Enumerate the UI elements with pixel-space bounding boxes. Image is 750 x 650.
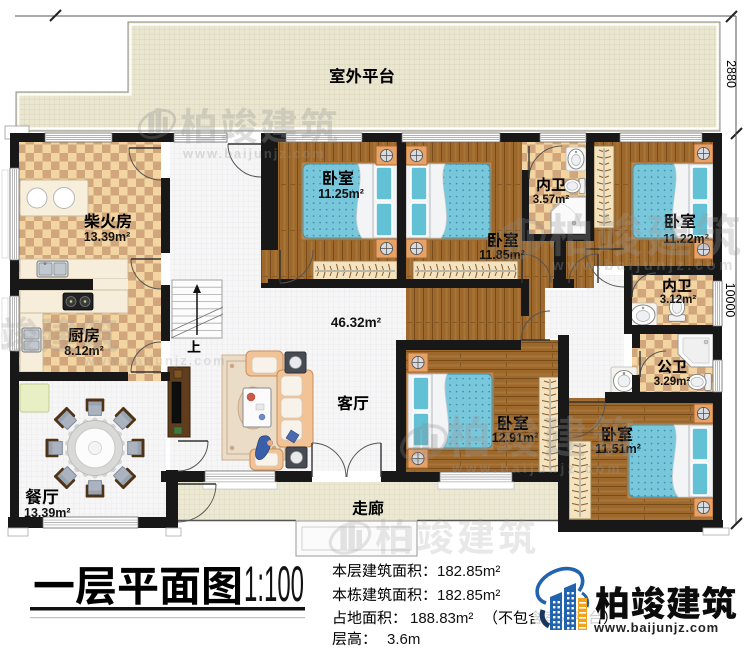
- svg-text:46.32m²: 46.32m²: [331, 315, 382, 330]
- svg-text:3.6m: 3.6m: [387, 631, 420, 648]
- svg-text:188.83m²: 188.83m²: [410, 610, 473, 627]
- svg-text:www.baijunjz.com: www.baijunjz.com: [182, 146, 326, 161]
- svg-text:3.12m²: 3.12m²: [660, 294, 697, 306]
- svg-text:www.baijunjz.com: www.baijunjz.com: [451, 461, 623, 476]
- svg-text:www.baijunjz.com: www.baijunjz.com: [593, 620, 719, 635]
- svg-text:13.39m²: 13.39m²: [84, 230, 131, 244]
- svg-text:11.25m²: 11.25m²: [318, 187, 364, 201]
- svg-text:3.29m²: 3.29m²: [654, 376, 691, 388]
- svg-text:www.baijunjz.com: www.baijunjz.com: [551, 257, 736, 274]
- svg-text:2880: 2880: [724, 60, 738, 88]
- svg-text:www.baijunjz.com: www.baijunjz.com: [83, 353, 227, 368]
- svg-text:13.39m²: 13.39m²: [24, 506, 71, 520]
- svg-text:3.57m²: 3.57m²: [533, 194, 570, 206]
- svg-text:1:100: 1:100: [244, 556, 304, 612]
- svg-text:182.85m²: 182.85m²: [437, 587, 500, 604]
- svg-text:182.85m²: 182.85m²: [437, 563, 500, 580]
- svg-text:10000: 10000: [723, 283, 737, 318]
